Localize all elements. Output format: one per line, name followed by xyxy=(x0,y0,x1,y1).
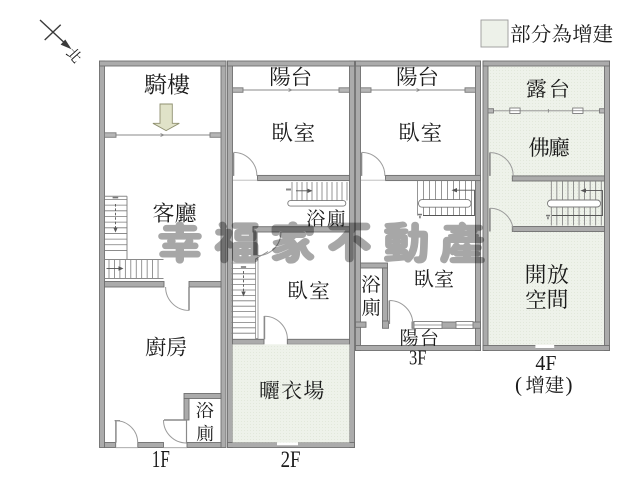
svg-text:4F: 4F xyxy=(535,351,556,375)
svg-text:): ) xyxy=(566,373,573,397)
svg-text:2F: 2F xyxy=(281,447,301,472)
svg-text:(: ( xyxy=(515,373,522,397)
svg-text:1F: 1F xyxy=(152,447,170,473)
svg-text:3F: 3F xyxy=(409,346,427,370)
